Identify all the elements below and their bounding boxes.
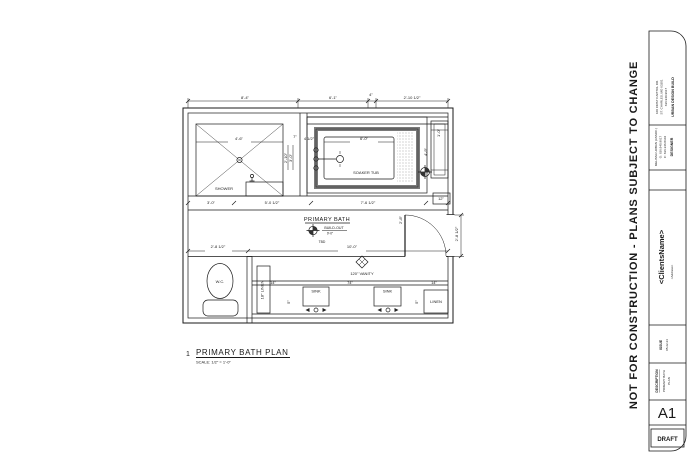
elevation-marker-icon <box>307 224 320 237</box>
sink-left-label: SINK <box>311 289 321 294</box>
dimension-label: 6'-1" <box>329 95 338 100</box>
toilet-tank <box>203 300 238 316</box>
shower-curb <box>246 182 283 196</box>
dimension-label: 2'-8" <box>398 215 403 224</box>
description-line-2: PLAN <box>667 377 671 385</box>
issue-block: ISSUE 05.22.24 <box>659 339 669 351</box>
shower-head-icon <box>250 174 255 181</box>
company-address-1: 100 FIRST CAPITOL DR. <box>655 80 659 114</box>
room-note: TBD <box>319 240 326 244</box>
linen-tower-label: 18" LINEN <box>260 281 265 300</box>
designer-phone-2: C: 636.346.8104 <box>663 136 667 159</box>
company-phone: 636.940.9617 <box>664 87 668 106</box>
tub-faucet-icon <box>314 148 344 170</box>
dimension-label: 74" <box>347 280 353 285</box>
wc-label: W.C. <box>216 279 225 284</box>
dimension-label: 14" <box>270 280 276 285</box>
dimension-label: 4" <box>369 92 373 97</box>
sheet-number: A1 <box>658 405 676 422</box>
warning-text: NOT FOR CONSTRUCTION - PLANS SUBJECT TO … <box>628 61 640 409</box>
dimension-label: 2'-8 1/2" <box>454 226 459 241</box>
designer-block: MELISSA URBAN (ASSOC.) O: 636.940.9617 C… <box>654 128 674 166</box>
vanity <box>252 256 448 314</box>
tub-tile-hatch <box>397 133 415 184</box>
elevation-value: 9'-0" <box>327 232 333 236</box>
client-block: <ClientsName> <Address> <box>657 229 674 284</box>
dimension-label: 10'-0" <box>347 244 358 249</box>
partition-wall <box>300 113 307 196</box>
mid-dimension-line <box>186 196 450 210</box>
sink-right-label: SINK <box>383 289 393 294</box>
hall-dimension-line <box>186 249 450 253</box>
title-block: NOT FOR CONSTRUCTION - PLANS SUBJECT TO … <box>628 31 686 451</box>
tub-label: SOAKER TUB <box>353 170 379 175</box>
drawing-title-text: PRIMARY BATH PLAN <box>196 348 288 357</box>
faucet-left-icon <box>306 308 327 312</box>
company-name: URBAN DESIGN BUILD <box>671 77 675 117</box>
issue-label: ISSUE <box>659 339 663 350</box>
tub-fixture-symbol <box>418 165 432 179</box>
draft-label: DRAFT <box>657 437 678 443</box>
dimension-label: 5'-0 1/2" <box>265 200 280 205</box>
shower <box>196 124 293 196</box>
faucet-right-icon <box>378 308 399 312</box>
designer-label: DESIGNER <box>670 137 674 156</box>
dimension-label: 5" <box>414 300 419 304</box>
room-label-group: PRIMARY BATH BUILD-OUT 9'-0" TBD <box>304 217 350 244</box>
client-address: <Address> <box>670 265 674 280</box>
dimension-label: 7'-6 1/2" <box>361 200 376 205</box>
designer-name: MELISSA URBAN (ASSOC.) <box>654 128 658 166</box>
dimension-label: 1'-0" <box>436 128 441 137</box>
dimension-label: 2'-10 1/2" <box>404 95 421 100</box>
dimension-label: 8'-4" <box>241 95 250 100</box>
dimension-label: 6'-0" <box>360 136 369 141</box>
company-block: 100 FIRST CAPITOL DR. ST. CHARLES, MO 63… <box>655 77 675 117</box>
company-address-2: ST. CHARLES, MO 63301 <box>660 79 664 114</box>
drawing-title: 1 PRIMARY BATH PLAN SCALE: 1/2" = 1'-0" <box>186 348 290 365</box>
soaker-tub <box>314 129 432 187</box>
dimension-label: 3'-0" <box>288 153 293 162</box>
vanity-label: 120" VANITY <box>350 271 374 276</box>
dimension-label: 2'-8 1/2" <box>211 244 226 249</box>
dimension-label: 4'-9" <box>423 147 428 156</box>
description-line-1: PRIMARY BATH <box>662 370 666 392</box>
door-swing-arc <box>405 215 446 256</box>
sheet-canvas: PRIMARY BATH BUILD-OUT 9'-0" TBD <box>0 0 690 458</box>
toilet <box>203 264 238 317</box>
room-label: PRIMARY BATH <box>304 217 350 223</box>
client-name: <ClientsName> <box>657 229 666 284</box>
issue-date: 05.22.24 <box>665 339 669 351</box>
floor-plan: PRIMARY BATH BUILD-OUT 9'-0" TBD <box>183 92 464 323</box>
dimension-label: 5" <box>286 300 291 304</box>
dimension-label: 4 1/2" <box>304 136 315 141</box>
wc-partition-wall <box>247 257 252 324</box>
dimension-label: 12" <box>438 196 444 201</box>
dimension-label: 4'-6" <box>235 136 244 141</box>
drawing-scale: SCALE: 1/2" = 1'-0" <box>196 360 231 365</box>
drawing-sheet: PRIMARY BATH BUILD-OUT 9'-0" TBD <box>0 0 690 458</box>
designer-phone-1: O: 636.940.9617 <box>659 135 663 158</box>
dimension-label: 3'-0" <box>207 200 216 205</box>
dimension-label: 7" <box>293 134 297 139</box>
shower-label: SHOWER <box>215 186 233 191</box>
linen-cabinet-label: LINEN <box>430 299 442 304</box>
dimension-label: 14" <box>431 280 437 285</box>
vanity-fixture-symbol <box>356 256 368 268</box>
drawing-number: 1 <box>186 351 190 358</box>
elevation-label: BUILD-OUT <box>324 226 344 230</box>
description-label: DESCRIPTION <box>655 369 659 393</box>
draft-stamp: DRAFT <box>651 429 684 447</box>
description-block: DESCRIPTION PRIMARY BATH PLAN <box>655 369 671 393</box>
